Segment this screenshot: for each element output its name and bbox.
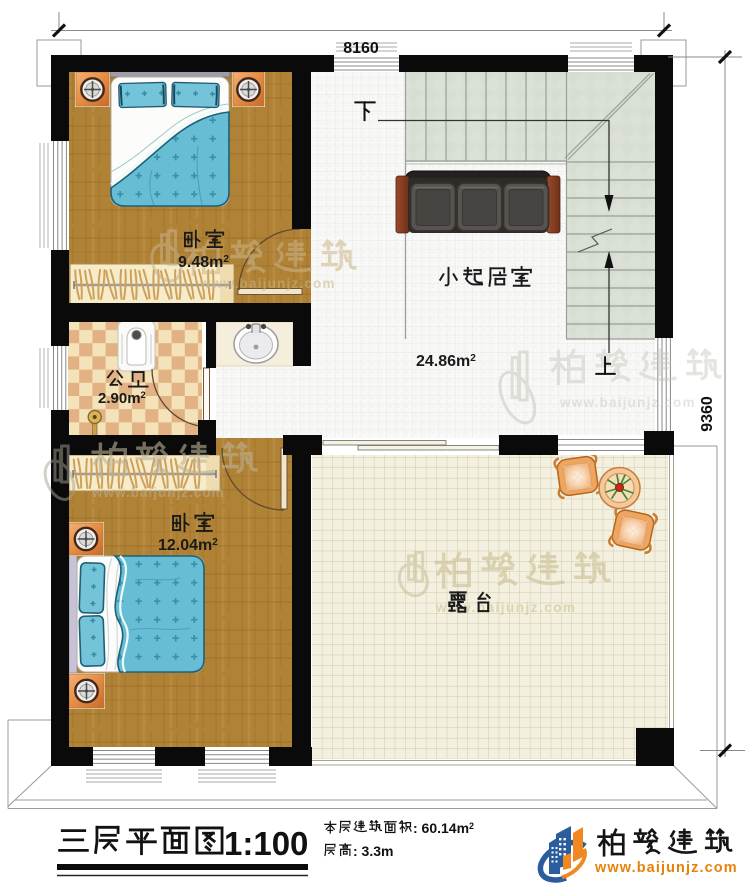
- svg-text:www.baijunjz.com: www.baijunjz.com: [199, 276, 336, 291]
- svg-text:8160: 8160: [343, 40, 379, 57]
- svg-text:www.baijunjz.com: www.baijunjz.com: [594, 860, 738, 876]
- svg-text:12.04m2: 12.04m2: [158, 537, 218, 554]
- svg-text:1:100: 1:100: [224, 825, 308, 862]
- svg-text:2.90m2: 2.90m2: [98, 390, 146, 407]
- svg-text:www.baijunjz.com: www.baijunjz.com: [435, 600, 577, 615]
- svg-text:: 3.3m: : 3.3m: [353, 843, 393, 859]
- svg-text:9.48m2: 9.48m2: [178, 254, 229, 271]
- svg-text:24.86m2: 24.86m2: [416, 353, 476, 370]
- svg-text:www.baijunjz.com: www.baijunjz.com: [91, 485, 225, 500]
- svg-text:: 60.14m2: : 60.14m2: [413, 820, 474, 836]
- svg-text:9360: 9360: [699, 396, 716, 432]
- svg-text:www.baijunjz.com: www.baijunjz.com: [559, 395, 696, 410]
